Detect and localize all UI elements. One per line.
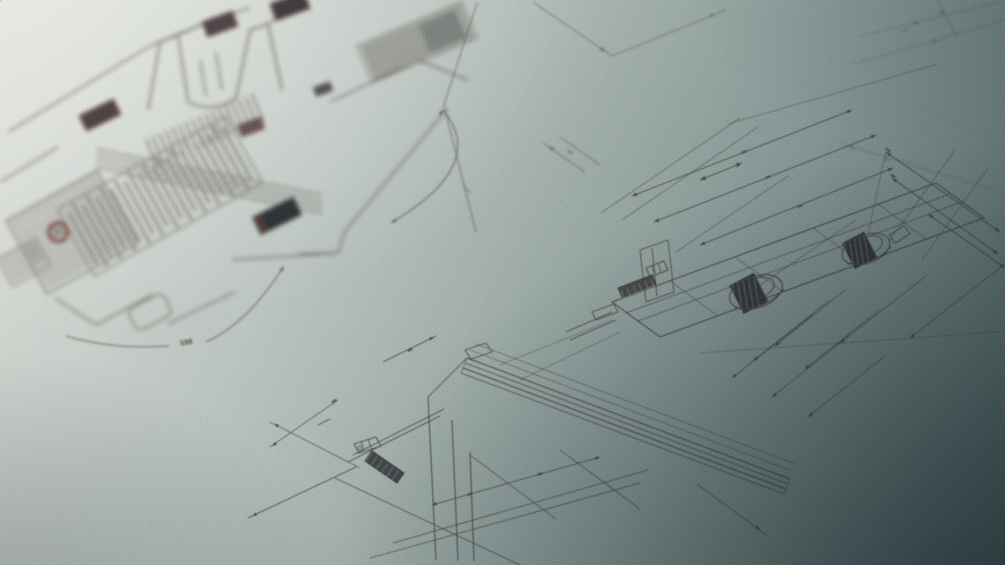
angle-dimension-label: 135 — [180, 339, 193, 347]
faint-dimension-lines — [840, 0, 1005, 190]
fixture-drawing — [248, 335, 798, 565]
grid-plate — [357, 1, 478, 82]
engine-assembly-drawing — [0, 0, 477, 332]
blueprint-photo: 135 — [0, 0, 1005, 565]
cooling-fins — [58, 116, 263, 276]
valve-knob — [837, 218, 915, 272]
bolt-isometric-bottom — [354, 437, 404, 483]
hatched-mount-plate — [6, 170, 138, 294]
bolt-isometric-right — [618, 261, 668, 300]
blueprint-linework: 135 — [0, 0, 1005, 565]
connector-dimension-lines — [533, 2, 726, 172]
